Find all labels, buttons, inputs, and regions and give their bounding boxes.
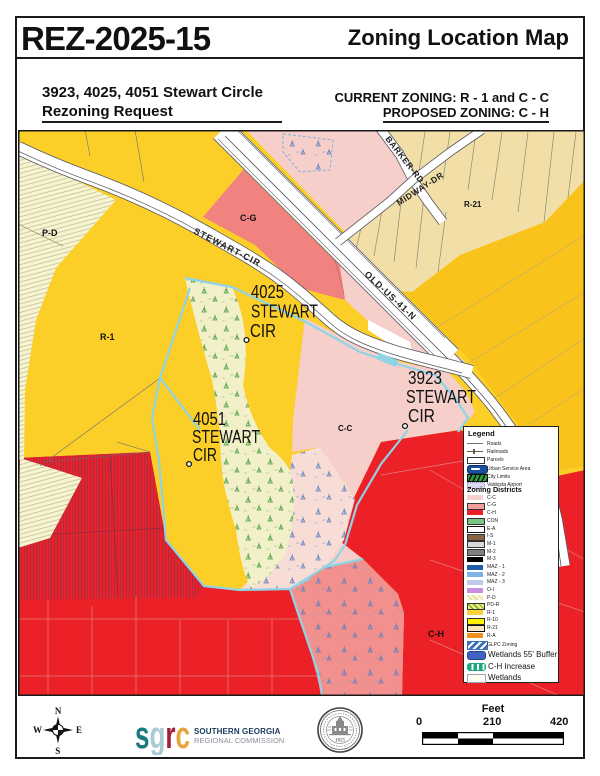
svg-text:4025: 4025 [251, 281, 284, 302]
svg-text:SOUTHERN GEORGIA: SOUTHERN GEORGIA [194, 727, 281, 736]
svg-text:C-H: C-H [428, 629, 444, 639]
svg-text:CIR: CIR [408, 405, 435, 426]
svg-text:sgrc: sgrc [135, 715, 190, 755]
svg-text:C-C: C-C [338, 424, 352, 433]
svg-text:R-21: R-21 [464, 200, 482, 209]
svg-text:CIR: CIR [193, 444, 217, 465]
svg-text:R-1: R-1 [100, 332, 115, 342]
svg-text:REGIONAL COMMISSION: REGIONAL COMMISSION [194, 736, 284, 745]
svg-text:E: E [76, 725, 82, 735]
svg-text:W: W [33, 725, 42, 735]
svg-text:CIR: CIR [250, 320, 276, 341]
svg-text:STEWART: STEWART [251, 301, 318, 322]
svg-text:1825: 1825 [335, 739, 346, 744]
svg-text:P-D: P-D [42, 228, 58, 238]
svg-text:STEWART: STEWART [406, 386, 476, 407]
svg-text:N: N [55, 706, 62, 716]
svg-text:S: S [55, 746, 60, 756]
svg-text:C-G: C-G [240, 213, 257, 223]
svg-text:3923: 3923 [408, 367, 442, 388]
